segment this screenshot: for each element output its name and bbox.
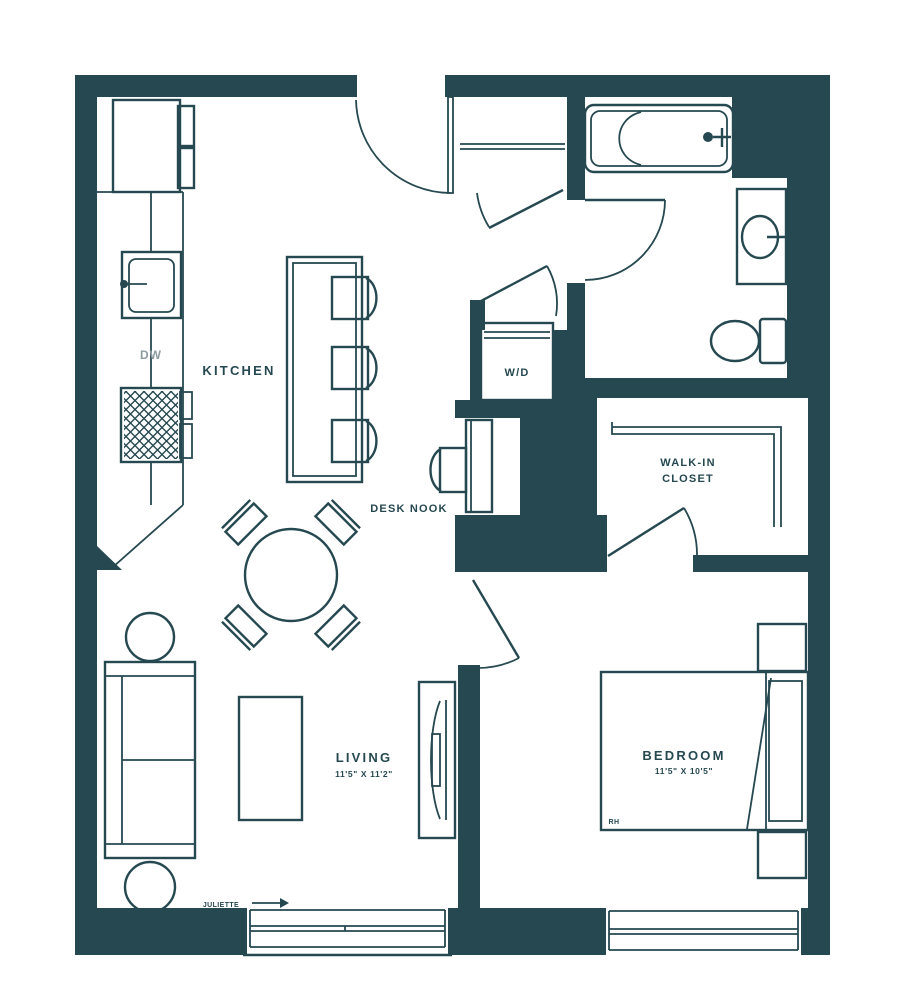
walk-in-closet-label: CLOSET bbox=[662, 473, 714, 485]
bathroom-door-swing bbox=[585, 200, 665, 280]
counter-diagonal bbox=[113, 505, 183, 567]
bedroom-door-swing bbox=[478, 658, 519, 668]
sofa bbox=[105, 662, 195, 858]
floor-plan: KITCHEN DW W/D WALK-IN CLOSET DESK NOOK … bbox=[0, 0, 903, 1000]
floor-plan-drawing: KITCHEN DW W/D WALK-IN CLOSET DESK NOOK … bbox=[0, 0, 903, 1000]
washer-dryer-label: W/D bbox=[505, 367, 530, 379]
entry-door bbox=[356, 97, 453, 193]
dining-chair bbox=[315, 605, 360, 650]
closet-door-leaf bbox=[608, 508, 684, 556]
entry-door-leaf bbox=[448, 97, 453, 193]
coat-closet bbox=[460, 144, 565, 228]
wd-door-swing bbox=[547, 266, 557, 316]
living-dims: 11'5" X 11'2" bbox=[335, 769, 393, 779]
washer-dryer bbox=[481, 266, 557, 400]
bar-stool bbox=[332, 420, 376, 462]
refrigerator bbox=[113, 100, 194, 192]
bathtub bbox=[585, 105, 733, 172]
desk-chair bbox=[430, 448, 466, 492]
duvet-fold bbox=[747, 678, 771, 829]
tv-console bbox=[419, 682, 455, 838]
dining-chair bbox=[222, 500, 267, 545]
kitchen-label: KITCHEN bbox=[202, 363, 275, 378]
desk bbox=[466, 420, 492, 512]
bedroom-dims: 11'5" X 10'5" bbox=[655, 766, 713, 776]
bar-stool bbox=[332, 347, 376, 389]
bar-stool bbox=[332, 277, 376, 319]
bedroom-window bbox=[606, 905, 801, 955]
range-stove bbox=[121, 388, 192, 462]
nightstand bbox=[758, 832, 806, 878]
bedroom-door bbox=[473, 580, 519, 668]
bedroom-door-leaf bbox=[473, 580, 519, 658]
desk-nook-label: DESK NOOK bbox=[370, 503, 447, 515]
entry-door-swing bbox=[356, 100, 450, 193]
kitchen-counter bbox=[97, 192, 183, 567]
bedroom-label: BEDROOM bbox=[642, 748, 725, 763]
walk-in-closet bbox=[608, 422, 781, 556]
coat-closet-door-leaf bbox=[489, 190, 563, 228]
bathroom-door bbox=[585, 200, 665, 280]
closet-shelf bbox=[460, 144, 565, 149]
counter-end-wedge bbox=[97, 546, 122, 570]
juliette-label: JULIETTE bbox=[203, 902, 239, 909]
wd-door-leaf bbox=[481, 266, 547, 301]
walls bbox=[75, 75, 830, 955]
dining-chair bbox=[222, 605, 267, 650]
burner-grates bbox=[124, 391, 178, 459]
living-window bbox=[243, 905, 452, 958]
bed-brand-mark: RH bbox=[609, 819, 620, 826]
closet-door-swing bbox=[684, 508, 697, 556]
side-table bbox=[126, 613, 174, 661]
tub-faucet bbox=[703, 132, 713, 142]
walk-in-closet-label: WALK-IN bbox=[660, 457, 715, 469]
kitchen-sink bbox=[120, 252, 181, 318]
toilet bbox=[711, 319, 786, 363]
sink-faucet bbox=[120, 280, 128, 288]
vanity-sink bbox=[737, 189, 786, 284]
side-table bbox=[125, 862, 175, 912]
coffee-table bbox=[239, 697, 302, 820]
nightstand bbox=[758, 624, 806, 671]
kitchen-island bbox=[287, 257, 362, 482]
dining-chair bbox=[315, 500, 360, 545]
living-label: LIVING bbox=[336, 750, 393, 765]
dining-table bbox=[245, 529, 337, 621]
headboard bbox=[769, 681, 802, 821]
dishwasher-label: DW bbox=[140, 348, 162, 362]
coat-closet-door-swing bbox=[477, 193, 489, 227]
